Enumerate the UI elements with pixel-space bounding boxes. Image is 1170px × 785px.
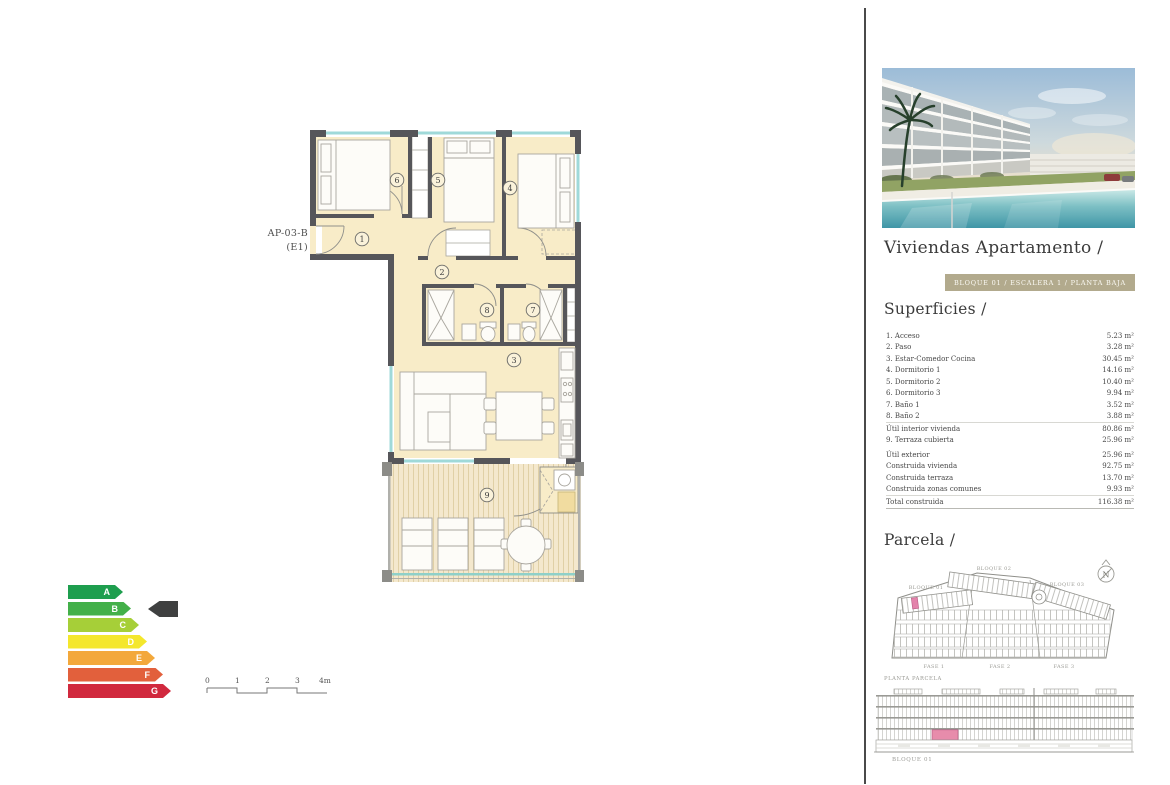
fase3-label: FASE 3 xyxy=(1054,664,1075,670)
floor-plan: 1 2 3 4 5 6 7 8 9 xyxy=(278,126,590,591)
energy-pointer-icon xyxy=(148,601,178,617)
room-1-acceso: 1 xyxy=(355,232,369,246)
site-plan: N BLOQUE 01 BLOQUE 02 BLOQUE 03 FASE 1 F… xyxy=(882,558,1135,682)
bloque2-label: BLOQUE 02 xyxy=(977,566,1012,572)
brochure-page: AP-03-B (E1) xyxy=(0,0,1170,785)
svg-text:2: 2 xyxy=(439,268,444,277)
kitchen-counter xyxy=(559,348,575,458)
superficies-heading: Superficies / xyxy=(884,300,987,318)
base-level xyxy=(876,740,1132,752)
table-row: 9. Terraza cubierta25.96 m² xyxy=(886,435,1134,447)
row-value: 80.86 m² xyxy=(1102,425,1134,433)
row-label: Construida terraza xyxy=(886,474,953,482)
row-value: 9.93 m² xyxy=(1107,485,1134,493)
red-car xyxy=(1104,174,1120,181)
row-value: 116.38 m² xyxy=(1098,498,1134,506)
energy-letter: D xyxy=(128,637,135,647)
scale-unit: 4m xyxy=(319,676,331,685)
row-value: 3.28 m² xyxy=(1107,343,1134,351)
svg-text:6: 6 xyxy=(394,176,399,185)
room-6-dormitorio: 6 xyxy=(390,173,404,187)
divider-line xyxy=(864,8,866,784)
table-row: 6. Dormitorio 39.94 m² xyxy=(886,388,1134,400)
room-9-terraza: 9 xyxy=(480,488,494,502)
row-value: 14.16 m² xyxy=(1102,366,1134,374)
room-4-dormitorio: 4 xyxy=(503,181,517,195)
room-7-bano: 7 xyxy=(526,303,540,317)
location-badge: BLOQUE 01 / ESCALERA 1 / PLANTA BAJA xyxy=(945,274,1135,291)
info-column: Viviendas Apartamento / BLOQUE 01 / ESCA… xyxy=(882,0,1135,785)
row-value: 25.96 m² xyxy=(1102,436,1134,444)
table-row: 5. Dormitorio 210.40 m² xyxy=(886,376,1134,388)
table-row: Construida terraza13.70 m² xyxy=(886,472,1134,484)
toilet xyxy=(480,322,496,342)
svg-text:8: 8 xyxy=(484,306,489,315)
row-label: Total construida xyxy=(886,498,944,506)
svg-text:4: 4 xyxy=(507,184,512,193)
row-label: 3. Estar-Comedor Cocina xyxy=(886,355,975,363)
parcela-heading: Parcela / xyxy=(884,531,955,549)
fase1-label: FASE 1 xyxy=(924,664,945,670)
row-label: Construida zonas comunes xyxy=(886,485,981,493)
row-value: 92.75 m² xyxy=(1102,462,1134,470)
bed-master xyxy=(518,154,574,228)
building-elevation xyxy=(874,686,1140,756)
energy-letter: F xyxy=(145,670,151,680)
table-row: 4. Dormitorio 114.16 m² xyxy=(886,365,1134,377)
svg-text:3: 3 xyxy=(511,356,516,365)
highlighted-unit xyxy=(932,730,958,740)
fase2-label: FASE 2 xyxy=(990,664,1011,670)
row-value: 25.96 m² xyxy=(1102,451,1134,459)
floor-bands xyxy=(876,695,1134,740)
table-row-total: Total construida116.38 m² xyxy=(886,495,1134,509)
scale-tick: 3 xyxy=(295,676,300,685)
bloque1-label: BLOQUE 01 xyxy=(909,585,944,591)
row-value: 3.88 m² xyxy=(1107,412,1134,420)
toilet xyxy=(522,322,536,342)
table-row: 3. Estar-Comedor Cocina30.45 m² xyxy=(886,353,1134,365)
table-row-subtotal: Útil interior vivienda80.86 m² xyxy=(886,422,1134,435)
shower xyxy=(540,290,562,340)
row-value: 10.40 m² xyxy=(1102,378,1134,386)
energy-bar-d: D xyxy=(68,635,147,649)
row-label: Útil interior vivienda xyxy=(886,425,960,433)
compass-n: N xyxy=(1103,571,1110,580)
row-value: 9.94 m² xyxy=(1107,389,1134,397)
room-2-paso: 2 xyxy=(435,265,449,279)
svg-text:9: 9 xyxy=(484,491,489,500)
energy-bar-e: E xyxy=(68,651,155,665)
bloque3-label: BLOQUE 03 xyxy=(1050,582,1085,588)
shower xyxy=(428,290,454,340)
sink xyxy=(462,324,476,340)
table-row: Construida vivienda92.75 m² xyxy=(886,461,1134,473)
bed-double xyxy=(318,140,390,210)
row-label: 7. Baño 1 xyxy=(886,401,920,409)
room-5-dormitorio: 5 xyxy=(431,173,445,187)
sun-loungers xyxy=(402,518,504,570)
row-label: 2. Paso xyxy=(886,343,911,351)
row-label: Útil exterior xyxy=(886,451,930,459)
energy-bar-a: A xyxy=(68,585,123,599)
energy-letter: G xyxy=(151,686,158,696)
sofa xyxy=(400,372,486,450)
sink xyxy=(508,324,520,340)
svg-text:5: 5 xyxy=(435,176,440,185)
bed-single xyxy=(444,138,494,222)
scale-bar: 0 1 2 3 4m xyxy=(203,674,337,700)
row-label: 5. Dormitorio 2 xyxy=(886,378,940,386)
table-row: 1. Acceso5.23 m² xyxy=(886,330,1134,342)
table-row: 7. Baño 13.52 m² xyxy=(886,399,1134,411)
svg-text:7: 7 xyxy=(530,306,535,315)
scale-tick: 1 xyxy=(235,676,240,685)
gray-car xyxy=(1122,176,1134,182)
table-row-subtotal: Útil exterior25.96 m² xyxy=(886,449,1134,461)
energy-bar-f: F xyxy=(68,668,163,682)
energy-bar-b: B xyxy=(68,602,131,616)
svg-text:1: 1 xyxy=(359,235,364,244)
energy-letter: A xyxy=(104,587,111,597)
room-3-estar: 3 xyxy=(507,353,521,367)
elevation-caption: BLOQUE 01 xyxy=(892,757,932,763)
table-row: 2. Paso3.28 m² xyxy=(886,342,1134,354)
row-label: Construida vivienda xyxy=(886,462,957,470)
row-label: 6. Dormitorio 3 xyxy=(886,389,940,397)
table-row: 8. Baño 23.88 m² xyxy=(886,411,1134,423)
scale-tick: 0 xyxy=(205,676,210,685)
row-value: 13.70 m² xyxy=(1102,474,1134,482)
energy-letter: E xyxy=(136,653,142,663)
page-title: Viviendas Apartamento / xyxy=(884,238,1103,258)
room-8-bano: 8 xyxy=(480,303,494,317)
row-value: 30.45 m² xyxy=(1102,355,1134,363)
row-label: 1. Acceso xyxy=(886,332,920,340)
energy-bar-g: G xyxy=(68,684,171,698)
highlighted-unit xyxy=(911,597,918,609)
roof-rails xyxy=(894,689,1116,694)
energy-letter: C xyxy=(120,620,127,630)
coffee-table xyxy=(428,412,450,442)
energy-bar-c: C xyxy=(68,618,139,632)
planta-parcela-caption: PLANTA PARCELA xyxy=(884,676,942,682)
row-label: 4. Dormitorio 1 xyxy=(886,366,940,374)
table-row: Construida zonas comunes9.93 m² xyxy=(886,484,1134,496)
row-value: 5.23 m² xyxy=(1107,332,1134,340)
scale-tick: 2 xyxy=(265,676,270,685)
superficies-table: 1. Acceso5.23 m² 2. Paso3.28 m² 3. Estar… xyxy=(886,330,1134,509)
row-label: 8. Baño 2 xyxy=(886,412,920,420)
energy-letter: B xyxy=(112,604,119,614)
row-label: 9. Terraza cubierta xyxy=(886,436,954,444)
parking-rows xyxy=(890,610,1110,657)
row-value: 3.52 m² xyxy=(1107,401,1134,409)
building-photo xyxy=(882,68,1135,228)
terrace-storage xyxy=(540,467,578,513)
